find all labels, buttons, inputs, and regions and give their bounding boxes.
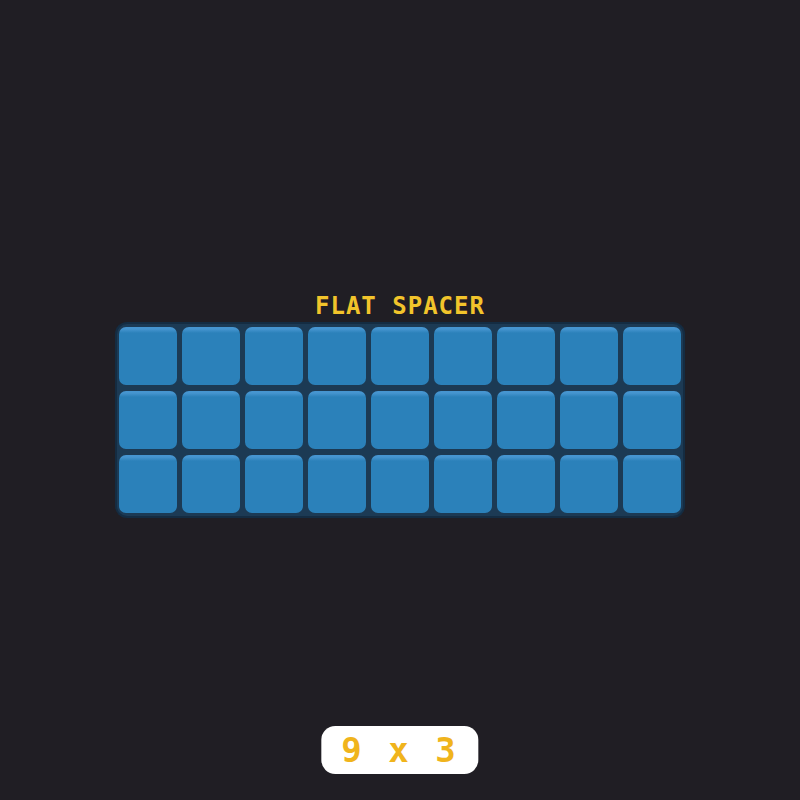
grid-tile xyxy=(308,455,366,513)
grid-tile xyxy=(245,455,303,513)
grid-tile xyxy=(182,455,240,513)
piece-grid xyxy=(117,324,683,516)
grid-tile xyxy=(245,327,303,385)
grid-tile xyxy=(623,455,681,513)
grid-tile xyxy=(434,391,492,449)
grid-tile xyxy=(182,391,240,449)
grid-tile xyxy=(560,455,618,513)
grid-tile xyxy=(119,391,177,449)
grid-tile xyxy=(497,327,555,385)
grid-tile xyxy=(119,327,177,385)
grid-tile xyxy=(371,455,429,513)
grid-tile xyxy=(308,391,366,449)
size-badge: 9 x 3 xyxy=(321,726,478,774)
grid-tile xyxy=(182,327,240,385)
grid-tile xyxy=(245,391,303,449)
grid-tile xyxy=(434,327,492,385)
grid-tile xyxy=(371,327,429,385)
grid-tile xyxy=(623,327,681,385)
grid-tile xyxy=(371,391,429,449)
grid-tile xyxy=(308,327,366,385)
grid-tile xyxy=(560,327,618,385)
grid-tile xyxy=(497,391,555,449)
size-badge-label: 9 x 3 xyxy=(341,730,458,770)
grid-tile xyxy=(119,455,177,513)
grid-tile xyxy=(623,391,681,449)
piece-title: FLAT SPACER xyxy=(0,292,800,320)
piece-preview-screen: FLAT SPACER 9 x 3 xyxy=(0,0,800,800)
grid-tile xyxy=(497,455,555,513)
grid-tile xyxy=(434,455,492,513)
grid-tile xyxy=(560,391,618,449)
